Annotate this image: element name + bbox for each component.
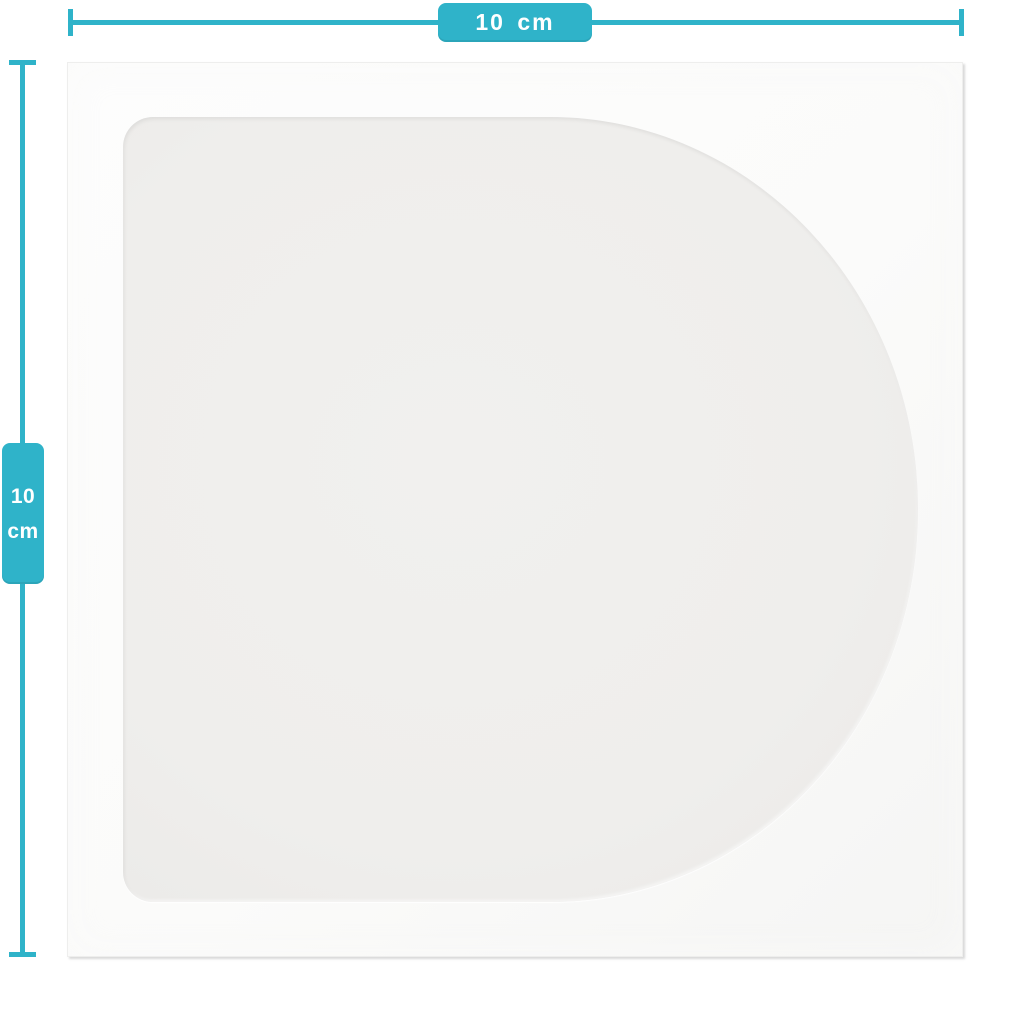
width-dimension-label: 10 cm [475, 9, 554, 36]
height-dimension-top-tick [9, 60, 36, 65]
height-dimension-unit: cm [7, 515, 38, 548]
cd-sleeve [67, 62, 963, 957]
height-dimension-bottom-tick [9, 952, 36, 957]
width-dimension-badge: 10 cm [438, 3, 592, 42]
width-dimension-left-tick [68, 9, 73, 36]
dimension-diagram-canvas: 10 cm 10 cm [0, 0, 1024, 1024]
height-dimension-value: 10 [11, 480, 35, 513]
width-dimension-right-tick [959, 9, 964, 36]
cd-sleeve-window-cutout [123, 117, 918, 902]
height-dimension-badge: 10 cm [2, 443, 44, 584]
